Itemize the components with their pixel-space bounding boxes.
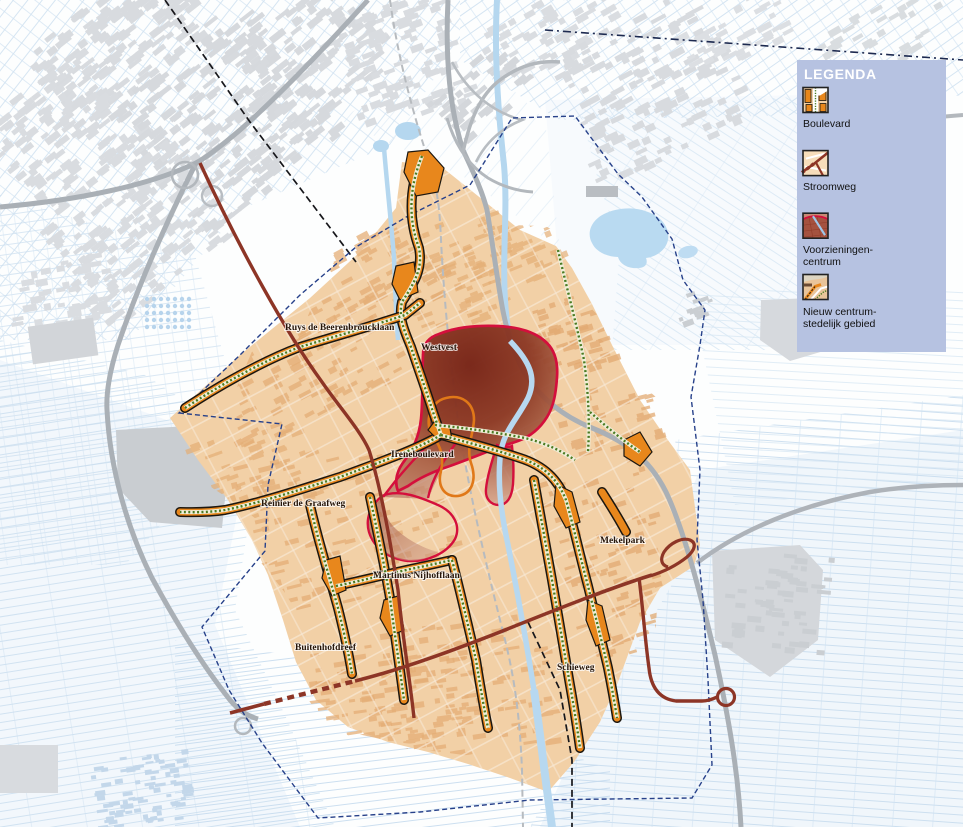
svg-text:Reinier de Graafweg: Reinier de Graafweg (261, 499, 345, 509)
svg-text:Nieuw centrum-: Nieuw centrum- (803, 306, 877, 318)
svg-text:Martinus Nijhofflaan: Martinus Nijhofflaan (373, 571, 461, 581)
svg-text:Ireneboulevard: Ireneboulevard (391, 450, 454, 460)
svg-text:Mekelpark: Mekelpark (600, 536, 646, 546)
svg-text:Buitenhofdreef: Buitenhofdreef (295, 643, 357, 653)
svg-text:Schieweg: Schieweg (557, 663, 595, 673)
svg-text:LEGENDA: LEGENDA (804, 66, 877, 82)
svg-text:centrum: centrum (803, 256, 841, 268)
svg-text:Voorzieningen-: Voorzieningen- (803, 244, 874, 256)
svg-text:stedelijk gebied: stedelijk gebied (803, 318, 876, 330)
svg-text:Ruys de Beerenbroucklaan: Ruys de Beerenbroucklaan (285, 323, 395, 333)
svg-text:Stroomweg: Stroomweg (803, 181, 856, 193)
svg-text:Westvest: Westvest (421, 343, 458, 353)
svg-text:Boulevard: Boulevard (803, 118, 850, 130)
